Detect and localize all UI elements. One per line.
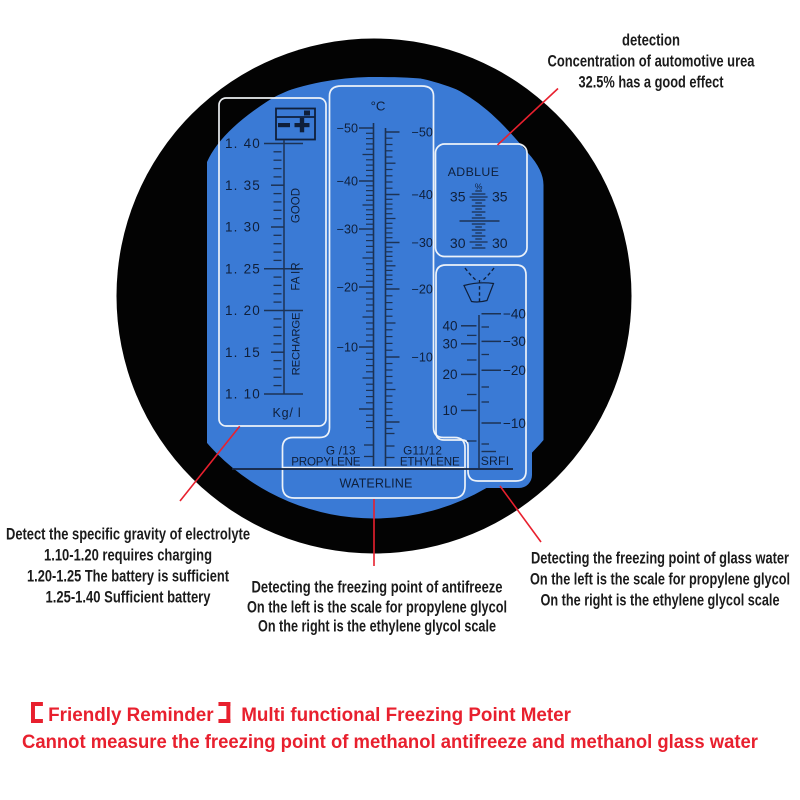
svg-text:30: 30 [442, 337, 457, 352]
svg-text:−30: −30 [412, 236, 433, 250]
svg-text:°C: °C [371, 99, 386, 114]
svg-text:ADBLUE: ADBLUE [448, 165, 500, 179]
svg-text:35: 35 [492, 189, 508, 205]
svg-text:−40: −40 [503, 307, 526, 322]
svg-text:−30: −30 [337, 223, 358, 237]
svg-text:FA IR: FA IR [291, 262, 303, 290]
svg-text:1. 25: 1. 25 [225, 261, 261, 276]
svg-text:−50: −50 [412, 126, 433, 140]
svg-text:1. 15: 1. 15 [225, 345, 261, 360]
svg-text:−10: −10 [337, 341, 358, 355]
svg-text:20: 20 [442, 367, 457, 382]
svg-text:−50: −50 [337, 122, 358, 136]
svg-text:Kg/ l: Kg/ l [272, 406, 301, 420]
svg-text:%: % [475, 182, 483, 192]
svg-text:SRFI: SRFI [481, 454, 510, 468]
svg-text:30: 30 [450, 235, 466, 251]
svg-text:PROPYLENE: PROPYLENE [291, 455, 361, 468]
svg-text:−10: −10 [503, 416, 526, 431]
svg-text:35: 35 [450, 189, 466, 205]
svg-text:ETHYLENE: ETHYLENE [400, 455, 460, 468]
svg-text:1. 20: 1. 20 [225, 303, 261, 318]
svg-text:40: 40 [442, 319, 457, 334]
svg-text:−10: −10 [412, 351, 433, 365]
svg-text:30: 30 [492, 235, 508, 251]
svg-text:−20: −20 [412, 283, 433, 297]
svg-text:WATERLINE: WATERLINE [340, 477, 413, 491]
svg-text:−20: −20 [337, 281, 358, 295]
svg-text:RECHARGE: RECHARGE [291, 312, 303, 375]
svg-text:GOOD: GOOD [291, 188, 303, 223]
svg-text:1. 40: 1. 40 [225, 136, 261, 151]
svg-text:1. 10: 1. 10 [225, 387, 261, 402]
svg-text:−20: −20 [503, 363, 526, 378]
svg-text:−40: −40 [337, 175, 358, 189]
svg-text:1. 30: 1. 30 [225, 220, 261, 235]
svg-text:10: 10 [442, 403, 457, 418]
svg-text:1. 35: 1. 35 [225, 178, 261, 193]
svg-text:−30: −30 [503, 334, 526, 349]
svg-text:−40: −40 [412, 188, 433, 202]
